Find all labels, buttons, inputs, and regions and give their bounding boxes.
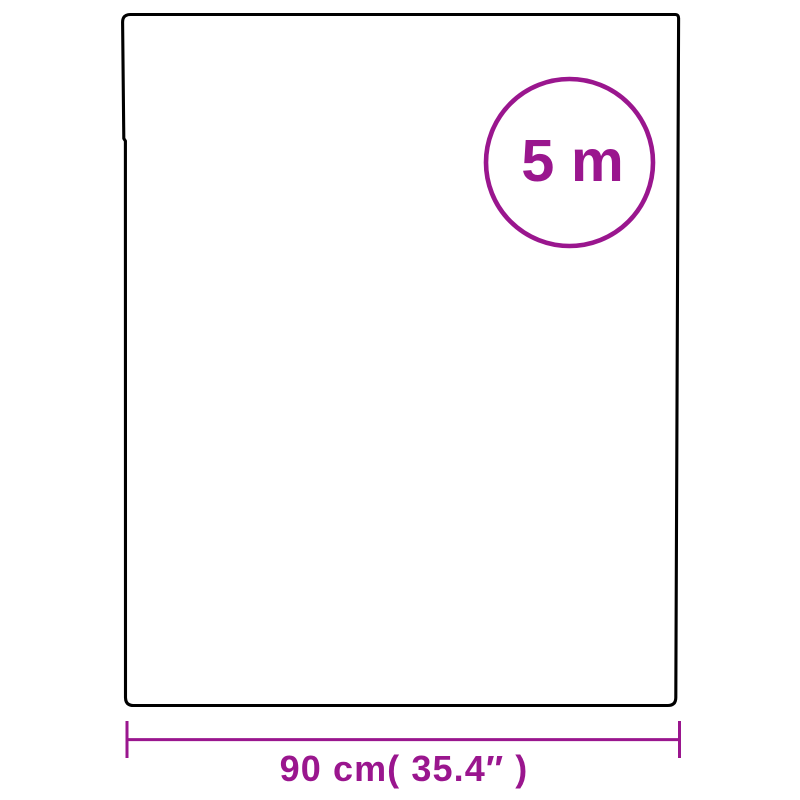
svg-text:5 m: 5 m	[521, 127, 624, 194]
svg-text:90 cm( 35.4″ ): 90 cm( 35.4″ )	[280, 748, 529, 789]
